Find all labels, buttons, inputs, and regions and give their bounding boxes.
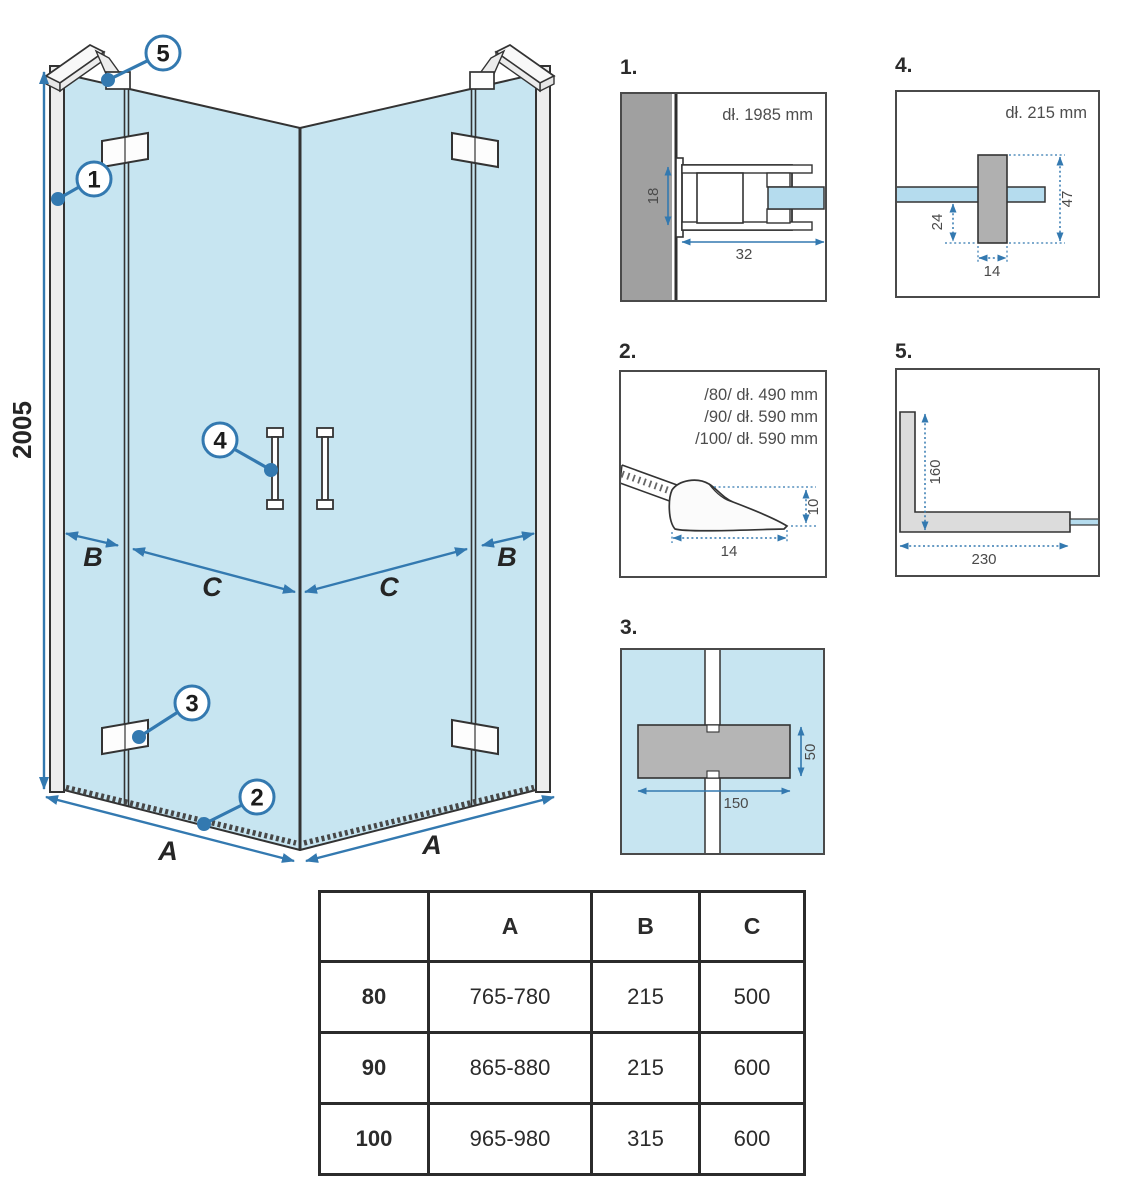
height-dimension: 2005 — [7, 72, 44, 789]
dim-c-left-label: C — [202, 572, 222, 602]
detail-box-2: /80/ dł. 490 mm /90/ dł. 590 mm /100/ dł… — [619, 370, 827, 578]
svg-text:/100/ dł. 590 mm: /100/ dł. 590 mm — [695, 430, 818, 448]
dim-c-right-label: C — [379, 572, 399, 602]
dim-a-left-label: A — [157, 836, 178, 866]
dim-b-left-label: B — [83, 542, 103, 572]
glass-section — [1070, 519, 1100, 525]
detail-3-number: 3. — [620, 616, 638, 640]
l-bracket-section — [900, 412, 1070, 532]
size-label: 100 — [320, 1104, 429, 1175]
detail-4-dim-47: 47 — [1059, 191, 1076, 208]
detail-4-note: dł. 215 mm — [1005, 104, 1087, 122]
detail-4-dim-14: 14 — [984, 263, 1001, 280]
detail-5-dim-230: 230 — [971, 551, 996, 568]
right-wall-profile — [536, 66, 550, 792]
shower-enclosure-diagram: 2005 B C C B A A 5 — [0, 0, 560, 880]
table-row: 100 965-980 315 600 — [320, 1104, 805, 1175]
handle-profile-section — [978, 155, 1007, 243]
callout-4-number: 4 — [213, 428, 227, 455]
value-b: 215 — [592, 962, 700, 1033]
technical-drawing-page: 2005 B C C B A A 5 — [0, 0, 1127, 1200]
detail-3-dim-50: 50 — [802, 744, 819, 761]
value-a: 965-980 — [429, 1104, 592, 1175]
callout-5-number: 5 — [156, 41, 169, 68]
detail-box-4: dł. 215 mm 47 24 14 — [895, 90, 1100, 298]
callout-1-number: 1 — [87, 167, 100, 194]
value-b: 315 — [592, 1104, 700, 1175]
detail-3-dim-150: 150 — [723, 795, 748, 812]
value-c: 500 — [700, 962, 805, 1033]
detail-4-dim-24: 24 — [929, 214, 946, 231]
left-wall-profile — [50, 66, 64, 792]
detail-box-3: 150 50 — [620, 648, 825, 855]
detail-2-dim-14: 14 — [721, 543, 738, 560]
glass-section — [895, 187, 1045, 202]
value-c: 600 — [700, 1033, 805, 1104]
header-c: C — [700, 892, 805, 962]
right-glass-panel — [300, 74, 536, 850]
height-dimension-label: 2005 — [7, 401, 37, 459]
header-a: A — [429, 892, 592, 962]
callout-2-number: 2 — [250, 785, 263, 812]
table-row: 90 865-880 215 600 — [320, 1033, 805, 1104]
detail-4-number: 4. — [895, 54, 913, 78]
hinge-section — [638, 725, 790, 778]
value-c: 600 — [700, 1104, 805, 1175]
seal-profile-drawing — [620, 465, 787, 531]
detail-2-notes: /80/ dł. 490 mm /90/ dł. 590 mm /100/ dł… — [695, 386, 818, 448]
detail-1-number: 1. — [620, 56, 638, 80]
callout-3-number: 3 — [185, 691, 198, 718]
detail-2-dim-10: 10 — [805, 499, 822, 516]
size-table: A B C 80 765-780 215 500 90 865-880 215 … — [318, 890, 806, 1176]
corner-cell — [320, 892, 429, 962]
value-a: 865-880 — [429, 1033, 592, 1104]
value-b: 215 — [592, 1033, 700, 1104]
detail-5-dim-160: 160 — [927, 459, 944, 484]
value-a: 765-780 — [429, 962, 592, 1033]
dim-a-right-label: A — [421, 830, 442, 860]
table-header-row: A B C — [320, 892, 805, 962]
detail-5-dimensions: 160 230 — [900, 414, 1068, 568]
detail-1-dim-18: 18 — [645, 188, 662, 205]
callout-5: 5 — [101, 36, 180, 87]
detail-1-note: dł. 1985 mm — [722, 106, 813, 124]
table-row: 80 765-780 215 500 — [320, 962, 805, 1033]
detail-2-number: 2. — [619, 340, 637, 364]
size-label: 80 — [320, 962, 429, 1033]
glass-section — [768, 187, 824, 209]
header-b: B — [592, 892, 700, 962]
svg-text:/80/ dł. 490 mm: /80/ dł. 490 mm — [704, 386, 818, 404]
size-label: 90 — [320, 1033, 429, 1104]
detail-1-dim-32: 32 — [736, 246, 753, 263]
detail-5-number: 5. — [895, 340, 913, 364]
dim-b-right-label: B — [497, 542, 517, 572]
wall-profile-section — [676, 158, 824, 237]
svg-text:/90/ dł. 590 mm: /90/ dł. 590 mm — [704, 408, 818, 426]
detail-box-1: dł. 1985 mm 18 32 — [620, 92, 827, 302]
detail-box-5: 160 230 — [895, 368, 1100, 577]
